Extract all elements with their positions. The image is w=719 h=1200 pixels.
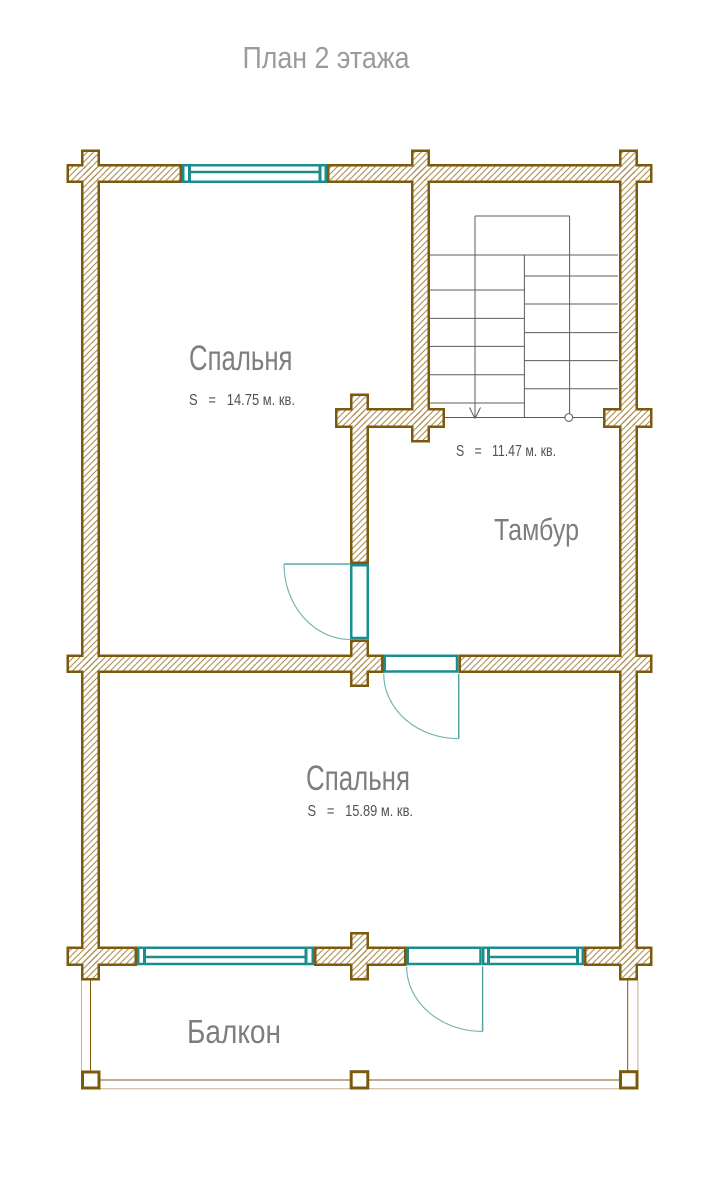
svg-text:Балкон: Балкон	[187, 1013, 281, 1050]
svg-text:План 2 этажа: План 2 этажа	[243, 40, 411, 75]
svg-text:S = 11.47 м. кв.: S = 11.47 м. кв.	[456, 443, 556, 460]
svg-text:S = 14.75 м. кв.: S = 14.75 м. кв.	[189, 392, 295, 409]
svg-text:S = 15.89 м. кв.: S = 15.89 м. кв.	[308, 803, 414, 820]
svg-text:Спальня: Спальня	[189, 339, 293, 378]
svg-text:Спальня: Спальня	[306, 759, 410, 798]
svg-text:Тамбур: Тамбур	[494, 512, 579, 547]
